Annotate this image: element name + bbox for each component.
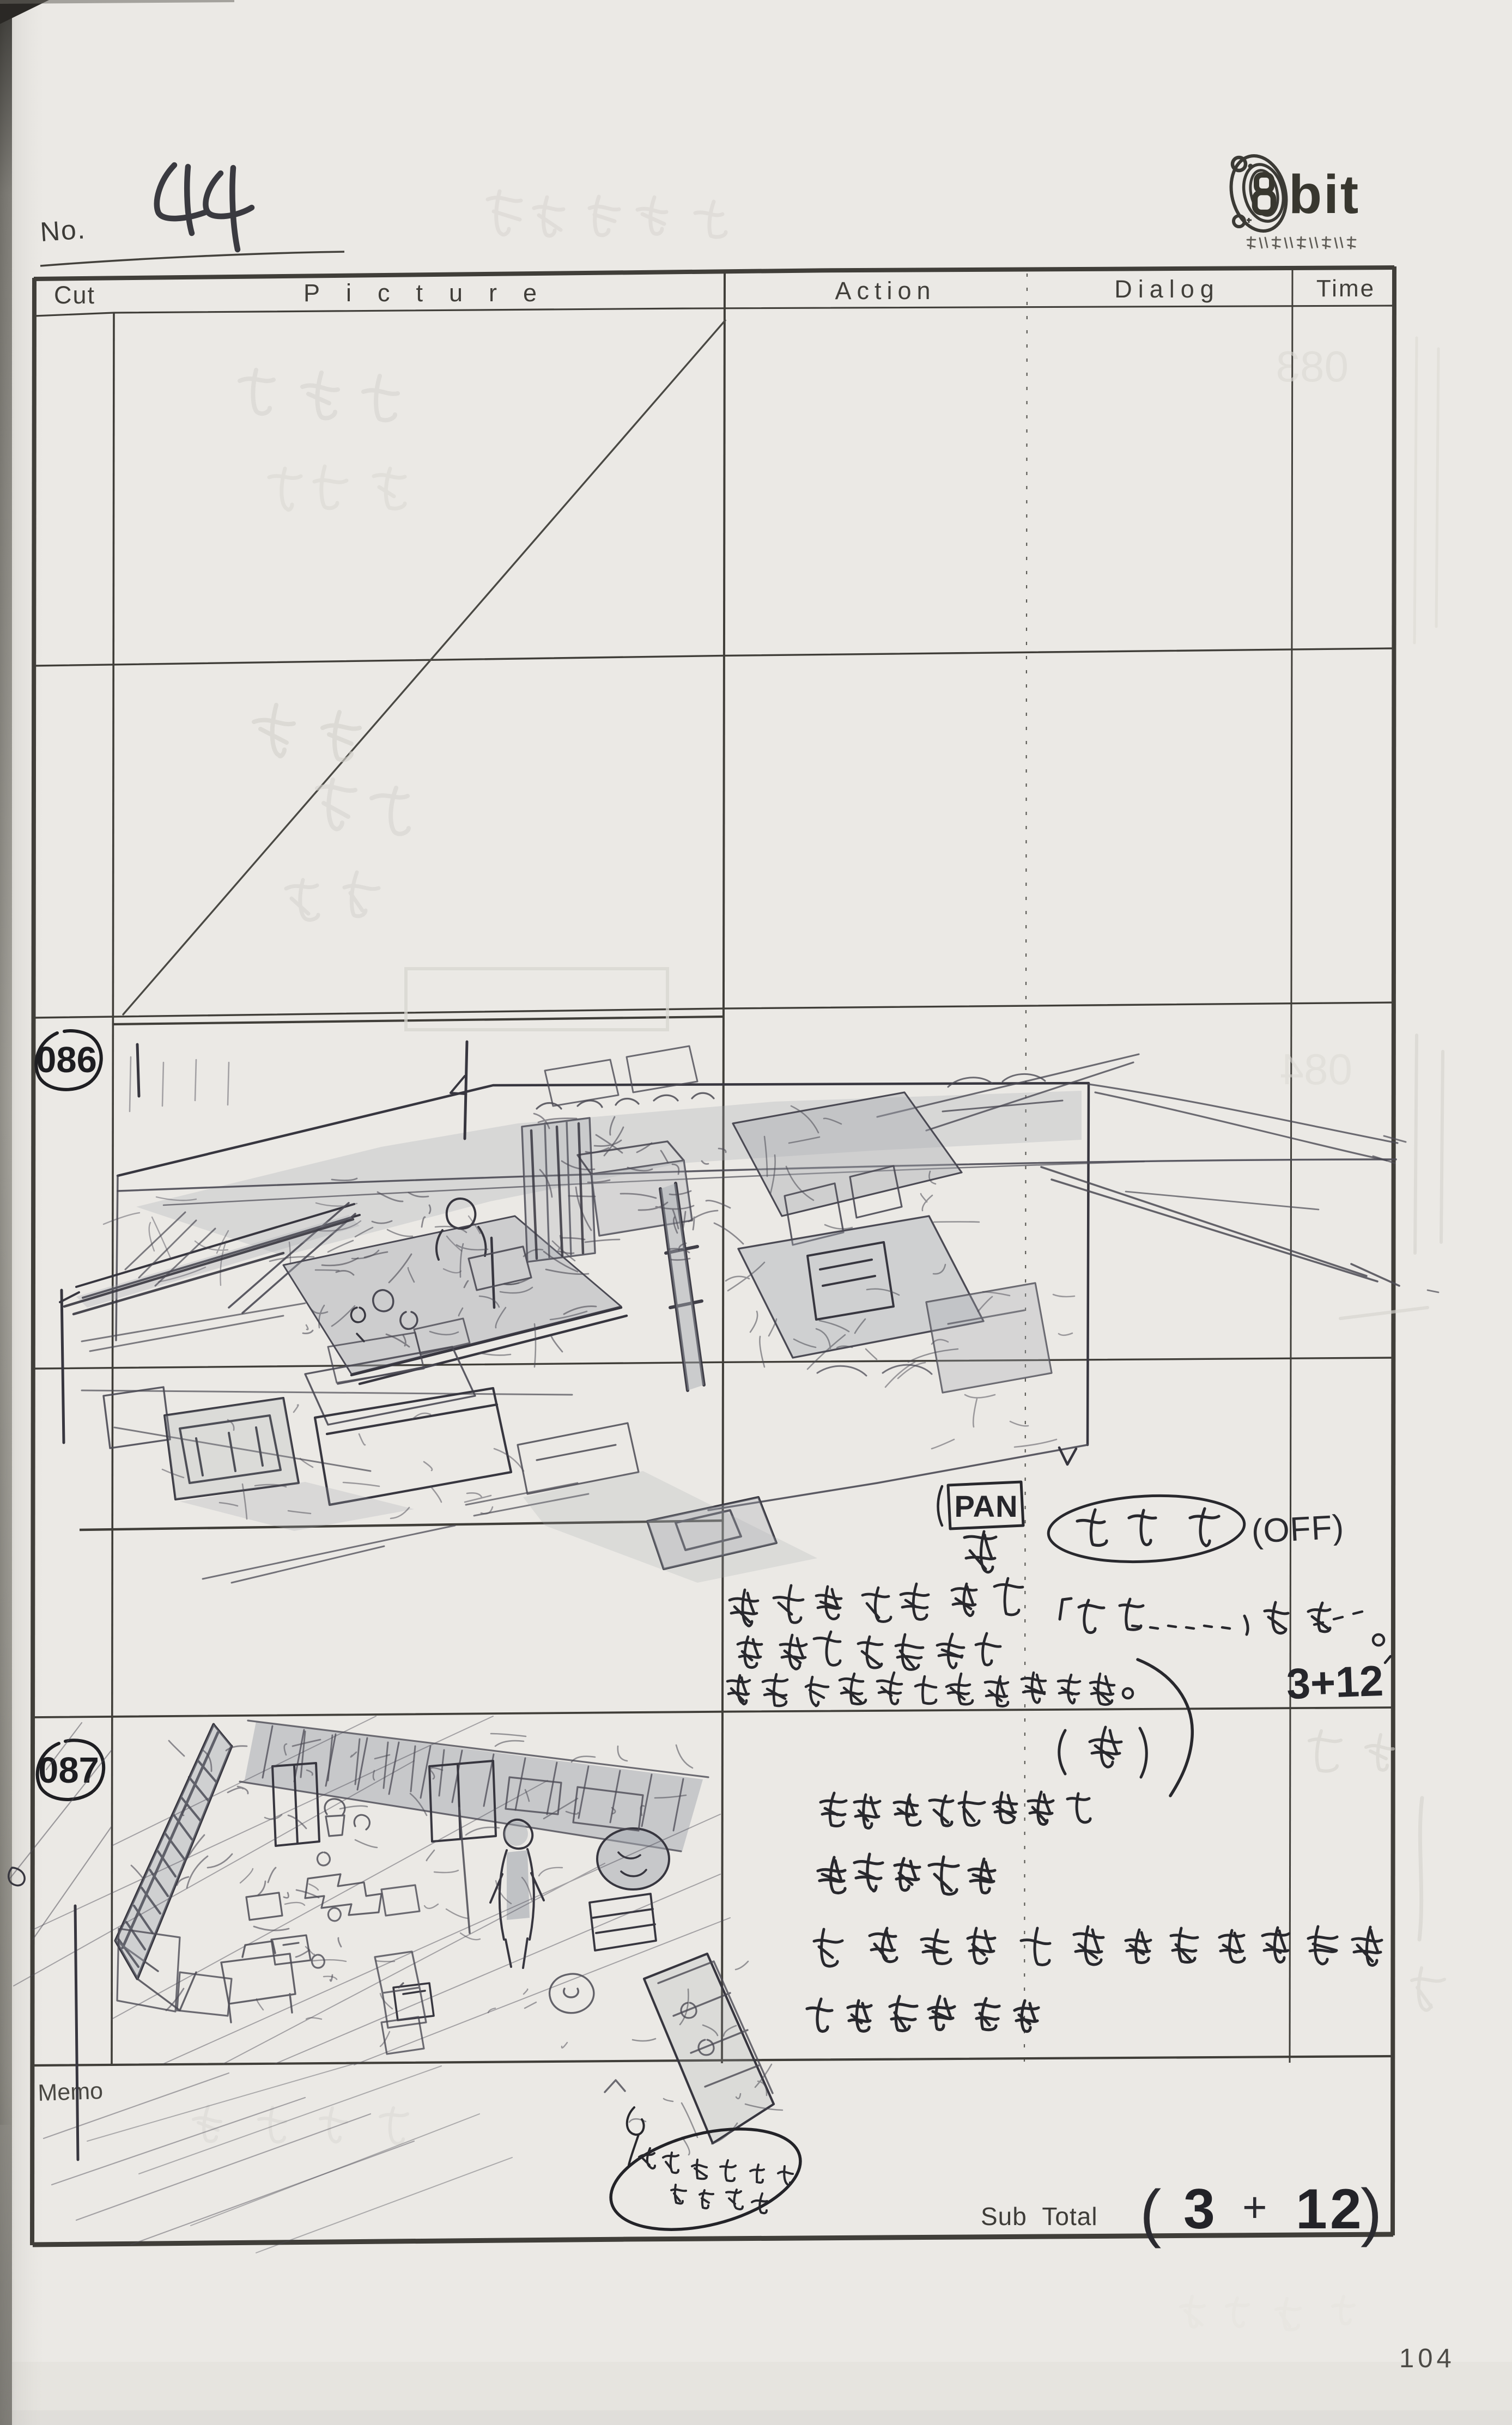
svg-text:12: 12 <box>1296 2178 1364 2241</box>
svg-text:3: 3 <box>1183 2178 1215 2241</box>
svg-text:(: ( <box>1140 2177 1161 2249</box>
svg-text:104: 104 <box>1399 2344 1455 2373</box>
svg-text:bit: bit <box>1289 164 1360 225</box>
svg-text:Time: Time <box>1316 275 1375 302</box>
svg-text:PAN: PAN <box>954 1489 1018 1523</box>
svg-text:Sub Total: Sub Total <box>981 2202 1098 2230</box>
svg-text:083: 083 <box>1276 342 1349 391</box>
svg-text:Memo: Memo <box>38 2078 104 2106</box>
svg-text:Picture: Picture <box>303 279 563 307</box>
svg-text:Cut: Cut <box>54 281 95 309</box>
svg-text:+: + <box>1242 2183 1267 2231</box>
svg-text:086: 086 <box>36 1040 97 1080</box>
svg-text:Action: Action <box>835 277 936 305</box>
svg-text:087: 087 <box>38 1750 99 1791</box>
svg-text:084: 084 <box>1280 1045 1352 1093</box>
svg-text:(OFF): (OFF) <box>1250 1508 1345 1551</box>
svg-text:Dialog: Dialog <box>1114 275 1220 303</box>
svg-text:No.: No. <box>39 214 87 247</box>
svg-text:3+12: 3+12 <box>1285 1656 1384 1708</box>
svg-text:): ) <box>1361 2176 1382 2248</box>
